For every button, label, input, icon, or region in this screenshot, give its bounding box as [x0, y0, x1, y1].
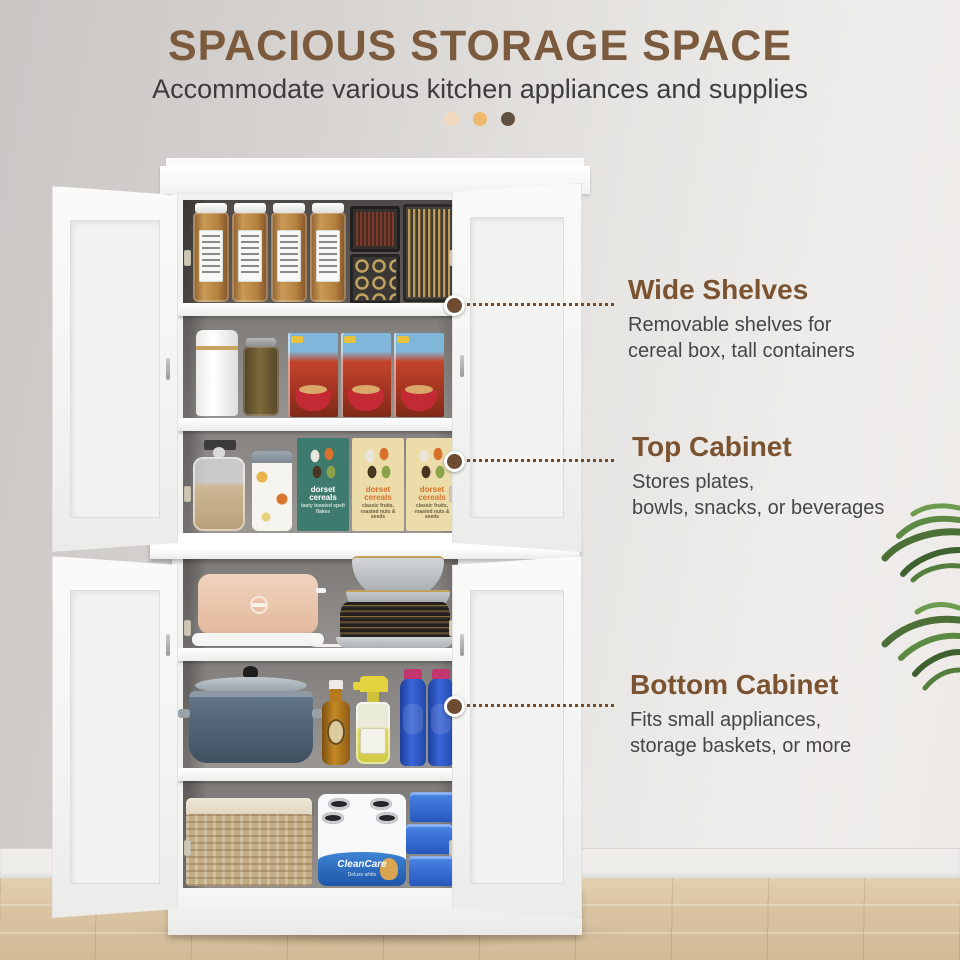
jar-label: [316, 230, 340, 282]
noodle-container: [350, 206, 400, 252]
page-subtitle: Accommodate various kitchen appliances a…: [0, 74, 960, 105]
cereal-bowl-art: [348, 389, 384, 411]
leader-dot-bottom-cabinet: [444, 696, 465, 717]
callout-heading: Wide Shelves: [628, 274, 855, 306]
callout-bottom-cabinet: Bottom Cabinet Fits small appliances, st…: [630, 669, 851, 759]
pot-handle: [178, 709, 190, 718]
toaster: [198, 574, 318, 634]
spray-neck: [367, 692, 379, 702]
callout-line: Removable shelves for: [628, 312, 855, 338]
carousel-dots: [0, 112, 960, 131]
cereal-box-red: [341, 333, 391, 417]
leader-dot-top-cabinet: [444, 451, 465, 472]
callout-line: Fits small appliances,: [630, 707, 851, 733]
patterned-container: [252, 451, 292, 531]
leader-line-wide-shelves: [462, 303, 614, 306]
dorset-cereals-box-cream: dorset cereals classic fruits, roasted n…: [352, 438, 404, 531]
wicker-basket: [186, 814, 312, 886]
shelf-1: [178, 303, 462, 316]
detergent-bottle: [428, 678, 454, 766]
door-panel: [70, 590, 160, 884]
callout-top-cabinet: Top Cabinet Stores plates, bowls, snacks…: [632, 431, 884, 521]
bottom-plate: [336, 637, 454, 648]
door-panel: [70, 220, 160, 518]
jar-lid: [234, 203, 266, 213]
leaf-art: [362, 446, 394, 482]
carousel-dot-2: [473, 112, 487, 126]
honeycomb-rack: [350, 254, 400, 304]
dorset-brand: dorset cereals: [297, 486, 349, 502]
door-handle: [166, 634, 170, 656]
callout-line: storage baskets, or more: [630, 733, 851, 759]
nut-jar: [193, 212, 229, 302]
basket-weave: [186, 814, 312, 886]
cereal-logo: [344, 336, 356, 343]
door-panel: [470, 217, 564, 518]
dorset-brand: dorset cereals: [352, 486, 404, 502]
stock-pot: [189, 691, 313, 763]
dorset-variant: tasty toasted spelt flakes: [299, 504, 347, 515]
blue-storage-box: [406, 824, 452, 854]
jar-lid: [273, 203, 305, 213]
bottle-grip: [403, 704, 423, 734]
rack-rings: [354, 258, 396, 300]
towel-brand: CleanCare: [318, 859, 406, 870]
hinge: [184, 250, 191, 266]
jar-lid: [246, 338, 276, 347]
gold-band: [196, 346, 238, 350]
shelf-3: [178, 648, 462, 661]
cereal-box-red: [394, 333, 444, 417]
spray-trigger: [360, 676, 388, 692]
door-top-right: [452, 183, 582, 552]
blue-storage-box: [409, 856, 455, 886]
nut-jar: [271, 212, 307, 302]
shelf-2: [178, 418, 462, 431]
noodles: [356, 212, 394, 246]
dorset-cereals-box-green: dorset cereals tasty toasted spelt flake…: [297, 438, 349, 531]
olive-oil-bottle: [322, 701, 350, 765]
door-panel: [470, 590, 564, 884]
pot-rim: [189, 691, 313, 697]
towel-roll-top: [370, 798, 392, 810]
spaghetti: [408, 209, 450, 297]
door-handle: [460, 634, 464, 656]
callout-line: Stores plates,: [632, 469, 884, 495]
dried-food-jar: [243, 346, 279, 416]
door-handle: [166, 358, 170, 380]
paper-towel-pack: CleanCare Deluxe white: [318, 794, 406, 886]
spray-label: [360, 728, 386, 754]
jar-lid: [195, 203, 227, 213]
dot-pattern: [252, 465, 292, 531]
jar-label: [199, 230, 223, 282]
hinge: [184, 620, 191, 636]
shelf-4: [178, 768, 462, 781]
container-lid: [252, 451, 292, 463]
cereal-logo: [291, 336, 303, 343]
glass-grain-jar: [193, 457, 245, 531]
callout-heading: Top Cabinet: [632, 431, 884, 463]
jar-label: [277, 230, 301, 282]
detergent-cap: [432, 669, 450, 679]
leaf-art: [416, 446, 448, 482]
door-bottom-left: [52, 556, 178, 918]
cereal-bowl-art: [295, 389, 331, 411]
bottle-neck: [330, 689, 342, 702]
white-canister: [196, 330, 238, 416]
jar-lid: [312, 203, 344, 213]
door-handle: [460, 355, 464, 377]
callout-line: bowls, snacks, or beverages: [632, 495, 884, 521]
door-bottom-right: [452, 556, 582, 918]
dorset-variant: classic fruits, roasted nuts & seeds: [408, 504, 456, 521]
callout-heading: Bottom Cabinet: [630, 669, 851, 701]
nut-jar: [310, 212, 346, 302]
detergent-cap: [404, 669, 422, 679]
jar-label: [238, 230, 262, 282]
page-title: SPACIOUS STORAGE SPACE: [0, 22, 960, 71]
leader-line-bottom-cabinet: [462, 704, 614, 707]
callout-wide-shelves: Wide Shelves Removable shelves for cerea…: [628, 274, 855, 364]
towel-roll-top: [322, 812, 344, 824]
cereal-logo: [397, 336, 409, 343]
leader-dot-wide-shelves: [444, 295, 465, 316]
blue-storage-box: [410, 792, 456, 822]
leaf-art: [307, 446, 339, 482]
towel-roll-top: [376, 812, 398, 824]
cereal-bowl-art: [401, 389, 437, 411]
toaster-lever: [316, 588, 326, 593]
dorset-variant: classic fruits, roasted nuts & seeds: [354, 504, 402, 521]
oil-label: [327, 719, 345, 745]
spray-cleaner: [356, 676, 396, 766]
plant-leaves: [855, 492, 960, 722]
hinge: [184, 840, 191, 856]
spray-body: [356, 702, 390, 764]
door-top-left: [52, 186, 178, 552]
nut-jar: [232, 212, 268, 302]
product-infographic: SPACIOUS STORAGE SPACE Accommodate vario…: [0, 0, 960, 960]
towel-roll-top: [328, 798, 350, 810]
lid-knob: [213, 447, 225, 457]
cereal-box-red: [288, 333, 338, 417]
leader-line-top-cabinet: [462, 459, 614, 462]
detergent-bottle: [400, 678, 426, 766]
toaster-knob: [250, 596, 268, 614]
towel-variant: Deluxe white: [318, 872, 406, 878]
hinge: [184, 486, 191, 502]
spaghetti-container: [403, 204, 455, 302]
carousel-dot-3: [501, 112, 515, 126]
callout-line: cereal box, tall containers: [628, 338, 855, 364]
carousel-dot-1: [445, 112, 459, 126]
